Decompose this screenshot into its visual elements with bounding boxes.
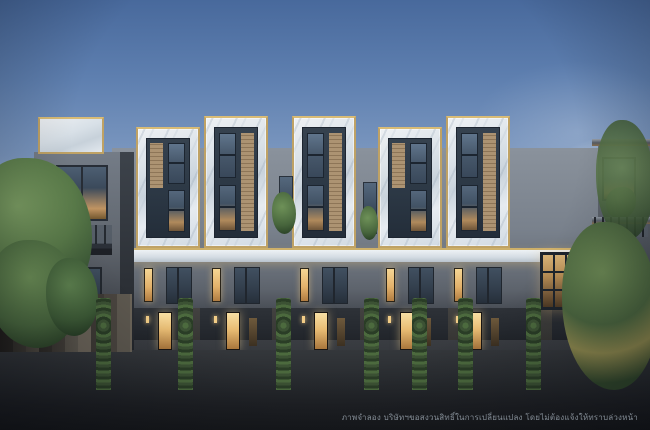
hedge <box>458 298 473 390</box>
lit-window <box>454 268 463 302</box>
hedge <box>526 298 541 390</box>
hedge <box>178 298 193 390</box>
architectural-rendering: ภาพจำลอง บริษัทฯขอสงวนสิทธิ์ในการเปลี่ยน… <box>0 0 650 430</box>
plant <box>272 192 296 234</box>
window <box>234 267 260 304</box>
mid-floor <box>378 262 442 308</box>
wood-panel <box>241 133 254 232</box>
wood-panel <box>392 143 405 188</box>
townhouse-unit <box>378 127 442 352</box>
hedge <box>364 298 379 390</box>
lit-window <box>300 268 309 302</box>
entry-door <box>226 312 240 350</box>
window-bay <box>388 138 432 238</box>
townhouse-unit <box>204 116 268 352</box>
window <box>410 143 427 184</box>
window-bay <box>456 127 500 238</box>
marble-frame <box>136 127 200 248</box>
lit-window <box>144 268 153 302</box>
entry-door <box>314 312 328 350</box>
window-bay <box>214 127 258 238</box>
window <box>461 185 478 232</box>
window <box>219 133 236 179</box>
hedge <box>276 298 291 390</box>
wood-panel <box>150 143 163 188</box>
window <box>461 133 478 179</box>
mid-floor <box>292 262 356 308</box>
window <box>168 143 185 184</box>
wall-lamp <box>214 316 217 323</box>
window-bay <box>146 138 190 238</box>
lit-window <box>386 268 395 302</box>
window <box>219 185 236 232</box>
wall-lamp <box>388 316 391 323</box>
window-bay <box>302 127 346 238</box>
door-sidelight <box>249 318 257 346</box>
wall-lamp <box>146 316 149 323</box>
window <box>307 133 324 179</box>
ground-floor <box>378 308 442 352</box>
tree <box>46 258 98 336</box>
marble-roof-band <box>38 117 104 154</box>
plant <box>360 206 378 240</box>
disclaimer-text: ภาพจำลอง บริษัทฯขอสงวนสิทธิ์ในการเปลี่ยน… <box>342 411 638 424</box>
window <box>476 267 502 304</box>
window <box>168 190 185 232</box>
window <box>307 185 324 232</box>
townhouse-unit <box>292 116 356 352</box>
marble-frame <box>204 116 268 248</box>
door-sidelight <box>337 318 345 346</box>
door-sidelight <box>491 318 499 346</box>
wood-panel <box>329 133 342 232</box>
wood-panel <box>483 133 496 232</box>
wall-lamp <box>302 316 305 323</box>
entry-door <box>158 312 172 350</box>
marble-frame <box>378 127 442 248</box>
ground-floor <box>446 308 510 352</box>
mid-floor <box>446 262 510 308</box>
mid-floor <box>204 262 268 308</box>
ground-floor <box>292 308 356 352</box>
hedge <box>412 298 427 390</box>
marble-frame <box>292 116 356 248</box>
window <box>410 190 427 232</box>
marble-frame <box>446 116 510 248</box>
window <box>322 267 348 304</box>
hedge <box>96 298 111 390</box>
ground-floor <box>204 308 268 352</box>
lit-window <box>212 268 221 302</box>
townhouse-unit <box>446 116 510 352</box>
